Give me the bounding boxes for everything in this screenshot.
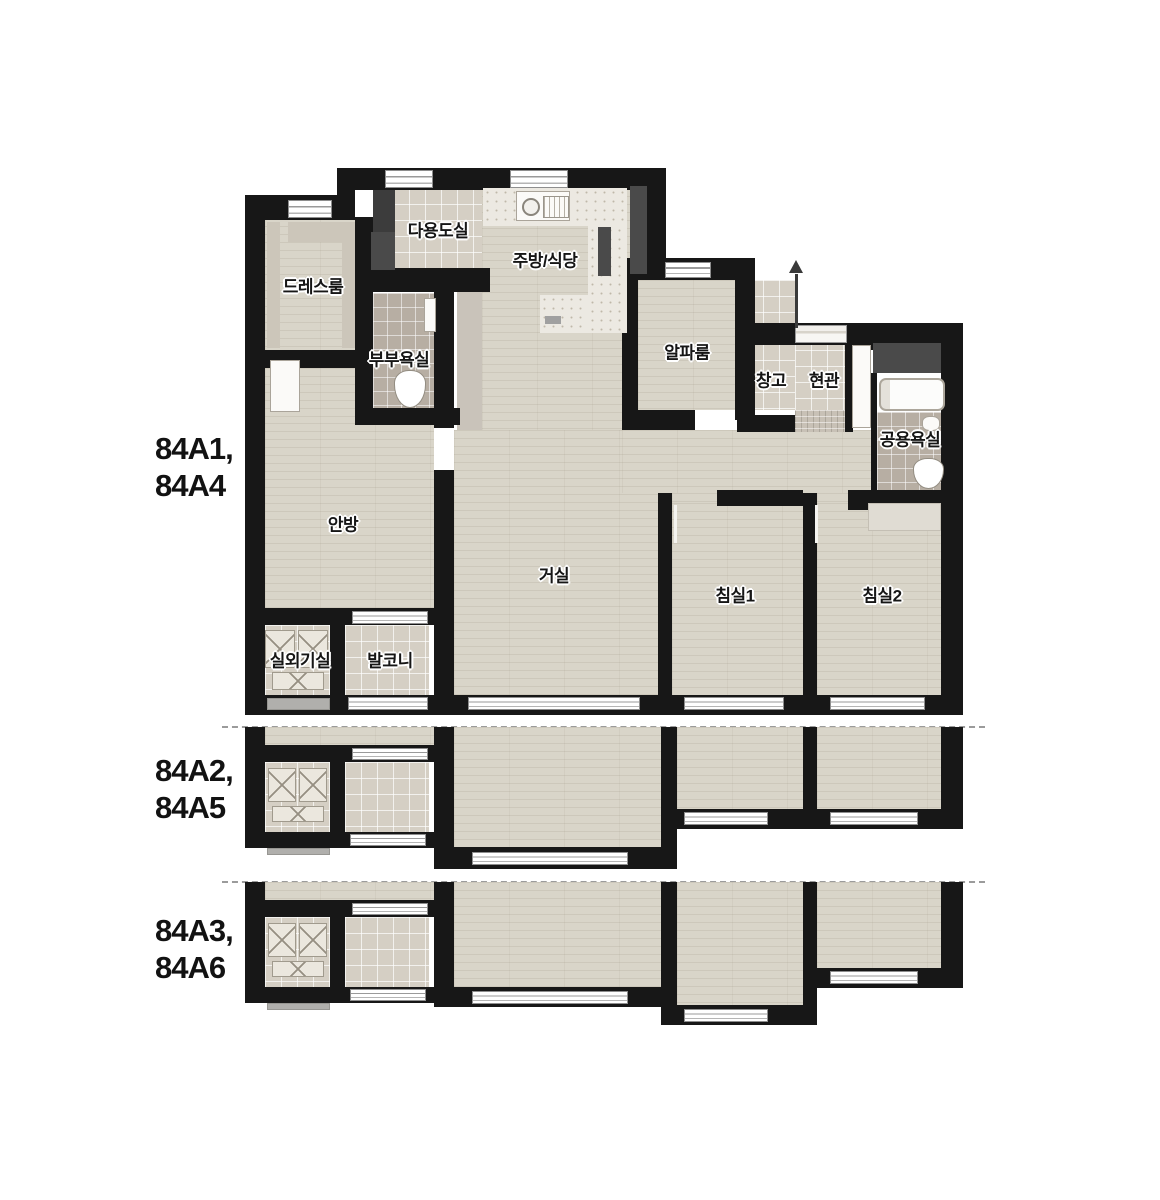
ac-room-vent — [267, 1003, 330, 1010]
wall — [941, 882, 963, 988]
floorplan-canvas: 드레스룸 다용도실 주방/식당 부부욕실 알파룸 창고 현관 공용욕실 안방 거… — [0, 0, 1160, 1200]
plan-84a3-84a6 — [0, 0, 1160, 1200]
window — [830, 971, 918, 984]
ac-unit-box — [272, 961, 324, 977]
window — [352, 903, 428, 915]
wall — [803, 882, 817, 1025]
ac-unit-box — [299, 923, 327, 957]
window — [684, 1009, 768, 1022]
bedroom2-floor — [817, 882, 941, 968]
ac-unit-box — [268, 923, 296, 957]
window — [472, 991, 628, 1004]
balcony-floor — [345, 917, 429, 987]
window — [350, 989, 426, 1001]
living-room-floor — [454, 882, 661, 987]
wall — [330, 917, 345, 987]
bedroom1-floor — [677, 882, 803, 1005]
wall — [245, 882, 265, 1001]
cut-floor-sliver — [265, 882, 435, 900]
